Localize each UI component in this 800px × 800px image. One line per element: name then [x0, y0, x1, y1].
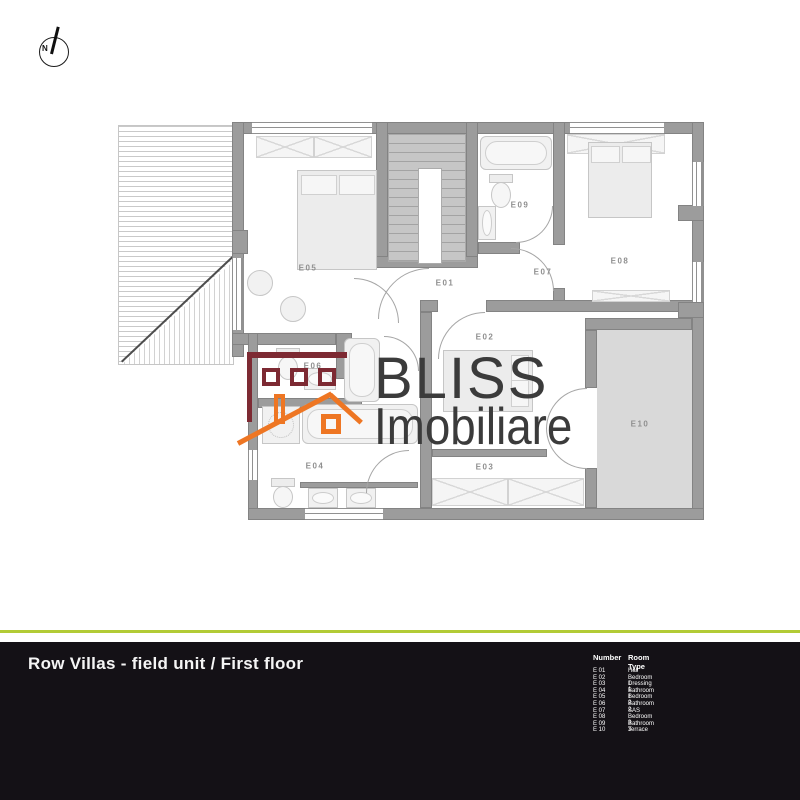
toilet-icon: [489, 174, 513, 208]
logo-window-icon: [318, 368, 336, 386]
legend-num: E 09: [593, 721, 605, 727]
door-arc: [516, 206, 553, 243]
wall: [232, 230, 248, 254]
legend-num: E 03: [593, 681, 605, 687]
legend-num: E 01: [593, 668, 605, 674]
wall: [553, 122, 565, 245]
window: [692, 262, 704, 302]
wall: [466, 122, 478, 257]
toilet-icon: [271, 478, 295, 508]
sink-icon: [478, 206, 496, 240]
chair-icon: [280, 296, 306, 322]
legend-row: E 01 Hall: [593, 668, 621, 675]
wardrobe: [256, 136, 314, 158]
window: [248, 450, 258, 480]
accent-divider: [0, 630, 800, 633]
legend-row: E 07 SAS: [593, 708, 621, 715]
page: N: [0, 0, 800, 800]
logo-window-icon: [262, 368, 280, 386]
room-label-e03: E03: [476, 463, 495, 472]
room-label-e05: E05: [299, 264, 318, 273]
wall: [585, 318, 692, 330]
room-label-e10: E10: [631, 420, 650, 429]
legend-row: E 02 Bedroom 1: [593, 675, 621, 682]
legend-type: SAS: [628, 708, 640, 714]
legend-num: E 08: [593, 714, 605, 720]
wall: [585, 468, 597, 508]
compass-north-label: N: [42, 44, 48, 53]
legend-header: Number Room Type: [593, 653, 621, 662]
bathtub-icon: [480, 136, 552, 170]
room-label-e07: E07: [534, 268, 553, 277]
legend-num: E 10: [593, 727, 605, 733]
room-label-e02: E02: [476, 333, 495, 342]
legend-num: E 07: [593, 708, 605, 714]
legend-num: E 04: [593, 688, 605, 694]
room-label-e09: E09: [511, 201, 530, 210]
bed-icon: [297, 170, 377, 270]
sink-icon: [308, 488, 338, 508]
legend-row: E 08 Bedroom 3: [593, 714, 621, 721]
stair-core: [418, 168, 442, 264]
stairs: [388, 134, 466, 262]
legend-row: E 05 Bedroom 2: [593, 694, 621, 701]
logo-roofline-dark: [247, 352, 347, 358]
legend-num: E 06: [593, 701, 605, 707]
logo-window-icon: [290, 368, 308, 386]
room-label-e01: E01: [436, 279, 455, 288]
legend-num: E 02: [593, 675, 605, 681]
legend-row: E 03 Dressing 1: [593, 681, 621, 688]
floor-title: Row Villas - field unit / First floor: [28, 654, 303, 674]
window: [252, 122, 372, 134]
window: [232, 258, 244, 330]
room-label-e08: E08: [611, 257, 630, 266]
wardrobe: [432, 478, 508, 506]
chair-icon: [247, 270, 273, 296]
window: [570, 122, 664, 134]
window: [692, 162, 704, 206]
wardrobe: [508, 478, 584, 506]
room-label-e04: E04: [306, 462, 325, 471]
window-sill: [678, 302, 704, 318]
window: [305, 508, 383, 520]
legend-type: Terrace: [628, 727, 648, 733]
terrace-hatch: [118, 125, 234, 365]
legend-header-number: Number: [593, 653, 621, 662]
wardrobe: [592, 290, 670, 302]
brand-text-line2: Imobiliare: [374, 404, 572, 452]
legend-type: Hall: [628, 668, 638, 674]
legend-row: E 06 Bathroom 2: [593, 701, 621, 708]
bed-icon: [588, 142, 652, 218]
legend: Number Room Type E 01 Hall E 02 Bedroom …: [593, 653, 621, 734]
logo-window-orange-icon: [321, 414, 341, 434]
legend-row: E 10 Terrace: [593, 727, 621, 734]
legend-num: E 05: [593, 694, 605, 700]
legend-row: E 04 Bathroom 1: [593, 688, 621, 695]
logo-wall-dark: [247, 352, 252, 422]
window-sill: [678, 205, 704, 221]
wardrobe: [314, 136, 372, 158]
wall: [585, 330, 597, 388]
wall: [376, 122, 388, 268]
door-arc: [366, 450, 409, 493]
legend-row: E 09 Bathroom 3: [593, 721, 621, 728]
